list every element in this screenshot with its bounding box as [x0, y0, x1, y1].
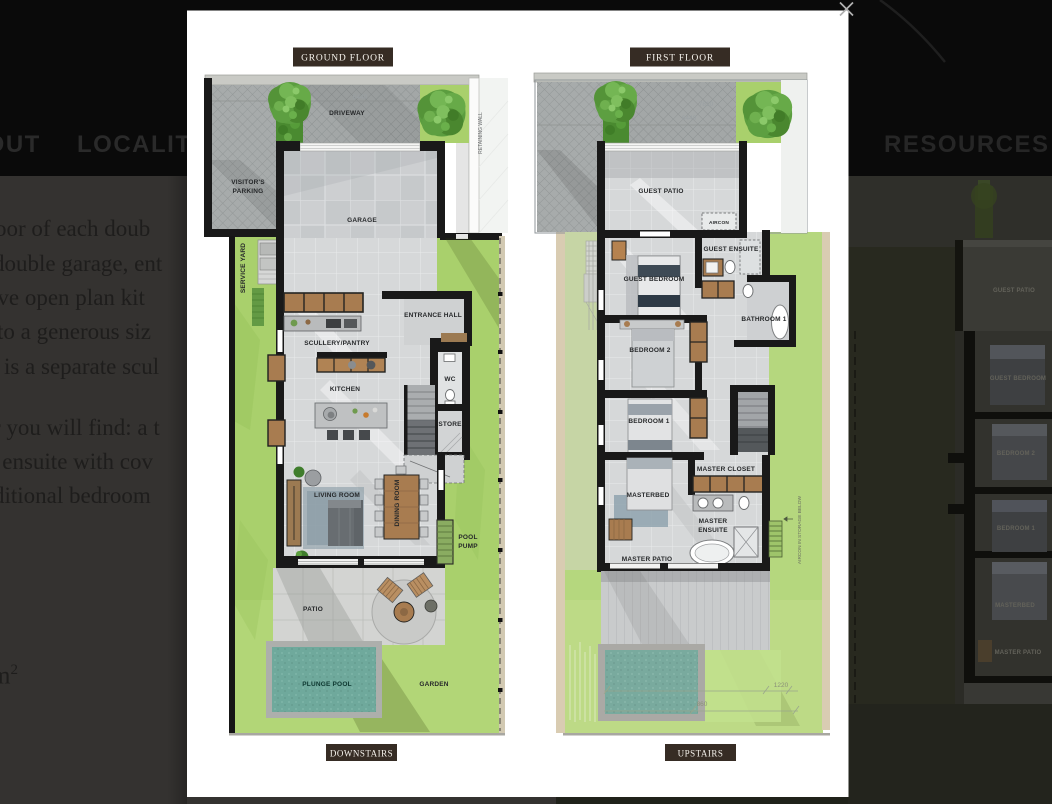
- svg-text:VISITOR'S: VISITOR'S: [231, 179, 265, 186]
- svg-text:DRIVEWAY: DRIVEWAY: [329, 110, 365, 117]
- svg-text:BEDROOM 2: BEDROOM 2: [997, 451, 1036, 457]
- svg-text:ENSUITE: ENSUITE: [698, 527, 728, 534]
- svg-text:GUEST PATIO: GUEST PATIO: [638, 188, 683, 195]
- svg-text:MASTERBED: MASTERBED: [995, 603, 1035, 609]
- svg-text:WC: WC: [444, 376, 455, 383]
- svg-text:BATHROOM 1: BATHROOM 1: [741, 316, 786, 323]
- svg-text:STORE: STORE: [438, 421, 462, 428]
- svg-text:PUMP: PUMP: [458, 543, 478, 550]
- svg-text:SCULLERY/PANTRY: SCULLERY/PANTRY: [304, 340, 370, 347]
- svg-text:860: 860: [697, 701, 708, 708]
- svg-text:PARKING: PARKING: [233, 188, 264, 195]
- svg-text:MASTER: MASTER: [699, 518, 728, 525]
- svg-text:MASTER PATIO: MASTER PATIO: [995, 650, 1042, 656]
- svg-text:GUEST PATIO: GUEST PATIO: [993, 288, 1035, 294]
- svg-text:KITCHEN: KITCHEN: [330, 386, 360, 393]
- svg-text:SERVICE YARD: SERVICE YARD: [240, 243, 247, 293]
- svg-text:BEDROOM 1: BEDROOM 1: [997, 526, 1036, 532]
- svg-text:FIRST FLOOR: FIRST FLOOR: [646, 54, 714, 64]
- svg-text:DINING ROOM: DINING ROOM: [394, 480, 401, 527]
- svg-text:GUEST ENSUITE: GUEST ENSUITE: [704, 246, 759, 253]
- svg-text:GUEST BEDROOM: GUEST BEDROOM: [624, 276, 685, 283]
- svg-text:DOWNSTAIRS: DOWNSTAIRS: [330, 749, 393, 759]
- svg-text:GROUND FLOOR: GROUND FLOOR: [301, 54, 385, 64]
- svg-text:GARAGE: GARAGE: [347, 217, 377, 224]
- svg-text:MASTER CLOSET: MASTER CLOSET: [697, 466, 755, 473]
- svg-text:1220: 1220: [774, 682, 789, 689]
- svg-text:BEDROOM 2: BEDROOM 2: [629, 347, 670, 354]
- svg-text:MASTERBED: MASTERBED: [627, 492, 670, 499]
- svg-text:6440: 6440: [682, 115, 697, 122]
- svg-text:POOL: POOL: [458, 534, 477, 541]
- svg-text:BEDROOM 1: BEDROOM 1: [628, 418, 669, 425]
- svg-text:PLUNGE POOL: PLUNGE POOL: [302, 681, 352, 688]
- svg-text:7810: 7810: [699, 101, 714, 108]
- svg-text:AIRCON IN STORAGE BELOW: AIRCON IN STORAGE BELOW: [797, 495, 803, 564]
- svg-text:MASTER PATIO: MASTER PATIO: [622, 556, 673, 563]
- svg-text:ENTRANCE HALL: ENTRANCE HALL: [404, 312, 462, 319]
- svg-text:LIVING ROOM: LIVING ROOM: [314, 492, 360, 499]
- svg-text:AIRCON: AIRCON: [709, 220, 729, 226]
- svg-text:GARDEN: GARDEN: [419, 681, 448, 688]
- svg-text:6440: 6440: [353, 94, 368, 101]
- svg-text:UPSTAIRS: UPSTAIRS: [678, 749, 724, 759]
- svg-text:RETAINING WALL: RETAINING WALL: [478, 112, 484, 154]
- svg-text:GUEST BEDROOM: GUEST BEDROOM: [990, 376, 1046, 382]
- svg-text:PATIO: PATIO: [303, 606, 323, 613]
